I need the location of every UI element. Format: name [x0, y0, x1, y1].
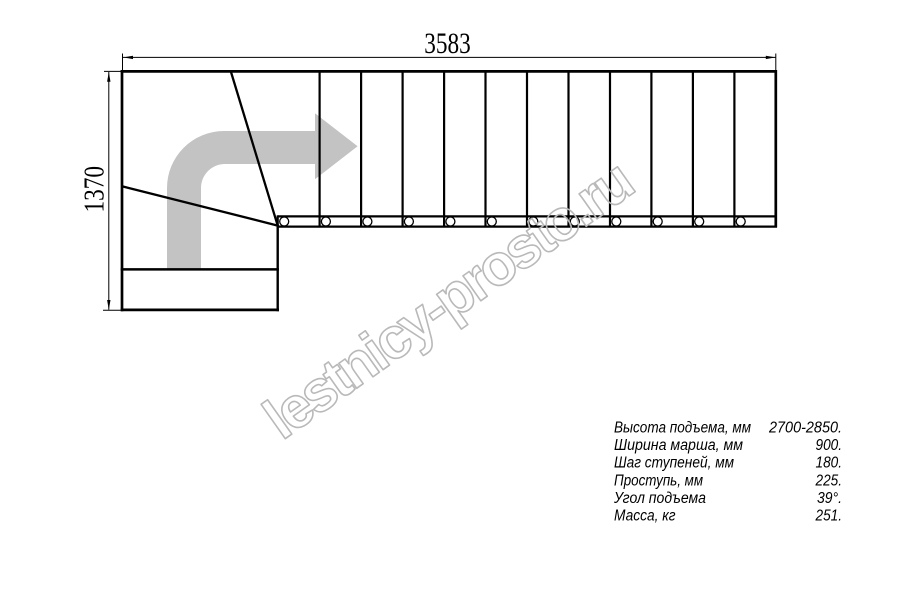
svg-text:Масса, кг: Масса, кг [614, 508, 676, 525]
svg-text:Шаг ступеней, мм: Шаг ступеней, мм [614, 455, 734, 472]
svg-text:3583: 3583 [424, 28, 471, 60]
svg-text:Ширина марша, мм: Ширина марша, мм [614, 437, 743, 454]
svg-text:Высота подъема, мм: Высота подъема, мм [614, 420, 751, 437]
svg-text:180.: 180. [816, 455, 843, 472]
svg-text:39°.: 39°. [817, 490, 842, 507]
svg-text:Угол подъема: Угол подъема [613, 490, 706, 507]
svg-text:251.: 251. [815, 508, 842, 525]
svg-text:225.: 225. [815, 472, 842, 489]
svg-text:1370: 1370 [79, 166, 110, 213]
svg-text:900.: 900. [816, 437, 843, 454]
svg-text:2700-2850.: 2700-2850. [768, 420, 842, 437]
svg-text:Проступь, мм: Проступь, мм [614, 472, 703, 489]
